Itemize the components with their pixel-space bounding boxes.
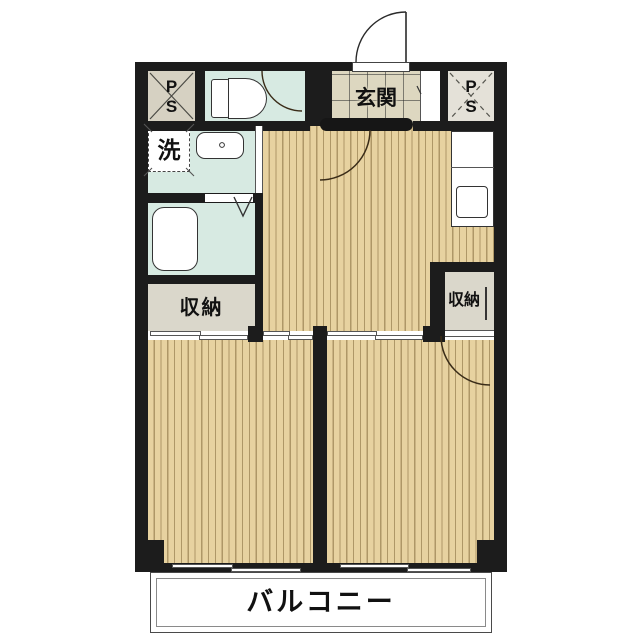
kitchen-sink <box>456 186 488 218</box>
room-bedroom-right-floor <box>327 340 494 563</box>
wall-bath-storage-divider <box>135 275 263 284</box>
washroom-doorway <box>255 126 263 193</box>
wall-ps-right-bottom <box>413 121 494 131</box>
bedroom-right-doorway <box>445 330 494 337</box>
kitchen-counter-divider <box>451 167 494 168</box>
wall-bedroom-divider <box>313 326 327 563</box>
front-door-arc <box>356 12 406 62</box>
wall-toilet-genkan <box>305 62 332 126</box>
bathtub <box>152 207 198 271</box>
storage-left-sliding-door-a <box>150 331 201 336</box>
wall-washblock-right <box>255 193 263 331</box>
bedroom-left-sliding-door-b <box>288 335 313 340</box>
wall-ps-left-side <box>195 62 205 130</box>
entrance-label: 玄関 <box>332 71 420 126</box>
room-bedroom-left-floor <box>148 340 315 563</box>
wall-corner-br <box>477 540 494 565</box>
wall-corner-bl <box>148 540 164 565</box>
bedroom-left-sliding-door-a <box>263 331 290 336</box>
bedroom-right-sliding-door-a <box>327 331 377 336</box>
ps-right-label-s: S <box>465 98 476 115</box>
storage-right-label: 収納 <box>443 272 485 330</box>
ps-right-label-p: P <box>465 78 476 95</box>
balcony-window-left-a <box>172 564 233 568</box>
entrance-side-strip <box>420 71 440 126</box>
wall-left <box>135 62 148 572</box>
floorplan-canvas: P S P S 玄関 洗 収納 収納 バルコニー <box>0 0 640 640</box>
bedroom-right-sliding-door-b <box>375 335 423 340</box>
ps-left-label-p: P <box>166 78 177 95</box>
wall-genkan-ps <box>440 62 448 126</box>
storage-left-sliding-door-b <box>199 335 248 340</box>
ps-right-label: P S <box>448 71 494 121</box>
laundry-label: 洗 <box>148 128 190 172</box>
bathroom-doorway <box>205 194 253 202</box>
storage-left-label: 収納 <box>148 284 255 331</box>
washbasin <box>196 132 244 159</box>
balcony-window-right-a <box>340 564 409 568</box>
wall-right <box>494 62 507 572</box>
ps-left-label: P S <box>148 71 195 121</box>
balcony-label: バルコニー <box>150 576 492 628</box>
ps-left-label-s: S <box>166 98 177 115</box>
